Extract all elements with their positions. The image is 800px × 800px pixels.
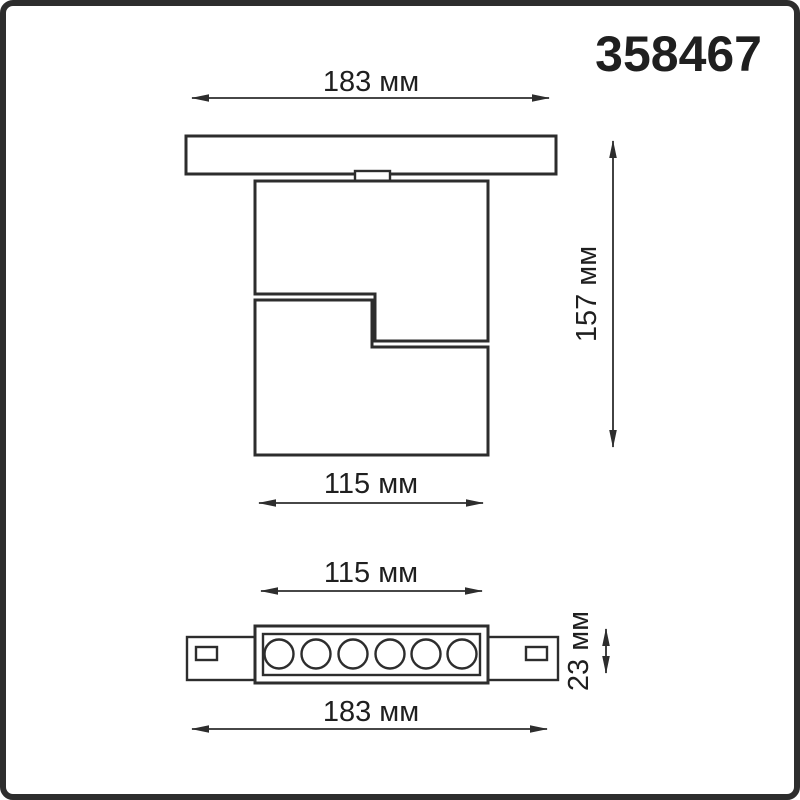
- article-number: 358467: [595, 26, 762, 82]
- led-lens-5: [412, 640, 441, 669]
- mount-slot-left: [196, 647, 217, 660]
- mount-slot-right: [526, 647, 547, 660]
- dim-label-front-body-width: 115 мм: [324, 557, 418, 589]
- dim-label-front-width: 183 мм: [323, 696, 419, 728]
- dim-label-body-width: 115 мм: [324, 468, 418, 500]
- led-lens-1: [265, 640, 294, 669]
- product-dimension-drawing: 358467 183 мм 157 мм 115 мм 115 мм: [0, 0, 800, 800]
- dim-label-top-width: 183 мм: [323, 66, 419, 98]
- dim-label-side-height: 157 мм: [571, 246, 603, 342]
- led-lens-2: [302, 640, 331, 669]
- dim-label-front-height: 23 мм: [563, 611, 595, 691]
- led-lens-3: [339, 640, 368, 669]
- led-lens-4: [376, 640, 405, 669]
- drawing-svg: 358467 183 мм 157 мм 115 мм 115 мм: [0, 0, 800, 800]
- track-mount-bar: [186, 136, 556, 174]
- led-lens-6: [448, 640, 477, 669]
